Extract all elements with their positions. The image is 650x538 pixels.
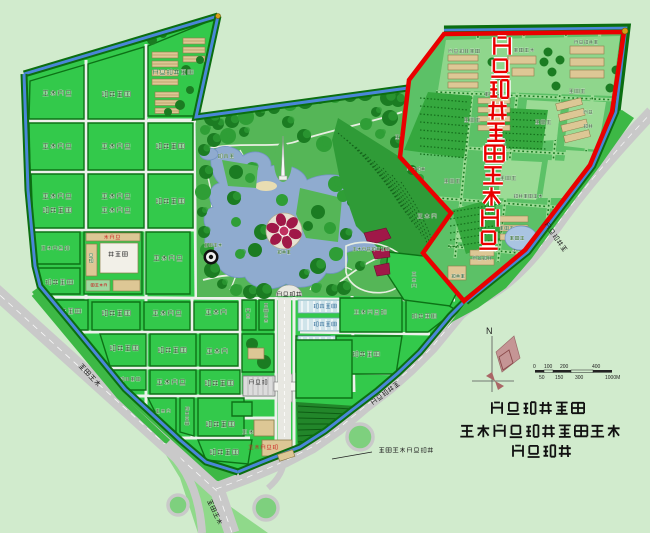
svg-text:300: 300 [575, 375, 584, 381]
svg-text:0: 0 [533, 364, 536, 370]
svg-text:50: 50 [539, 375, 545, 381]
svg-text:400: 400 [592, 364, 601, 370]
svg-text:N: N [486, 326, 493, 336]
svg-text:200: 200 [560, 364, 569, 370]
svg-text:150: 150 [555, 375, 564, 381]
svg-text:100: 100 [544, 364, 553, 370]
svg-text:1000M: 1000M [605, 375, 620, 381]
